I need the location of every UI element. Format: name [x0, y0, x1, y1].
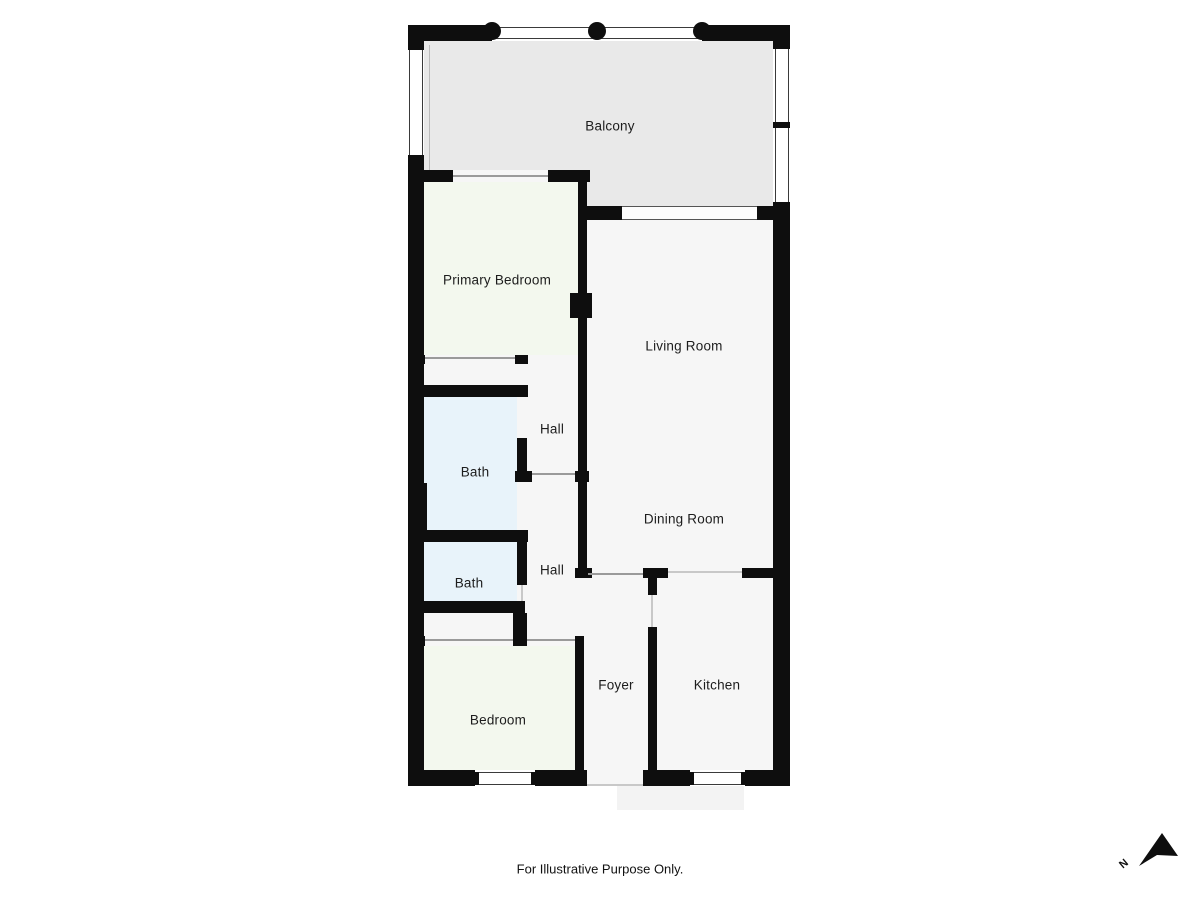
primary-bedroom-top-wall-left	[408, 170, 453, 182]
bedroom-floor	[424, 646, 575, 770]
primary-bedroom-top-wall-right	[548, 170, 590, 182]
primary-bedroom-bottom-stub-l	[408, 355, 425, 364]
bedroom-right-wall	[575, 636, 584, 770]
foyer-kitchen-door	[651, 595, 653, 627]
room-label-bath-upper: Bath	[461, 465, 490, 480]
bath-lower-right-wall	[517, 542, 527, 585]
foyer-kitchen-wall	[648, 627, 657, 770]
room-label-balcony: Balcony	[585, 119, 634, 134]
foyer-kitchen-wall-stem	[648, 578, 657, 595]
window-cap	[773, 44, 790, 49]
wall-right	[773, 205, 790, 786]
floor-plan: Balcony Primary Bedroom Living Room Hall…	[0, 0, 1200, 900]
room-label-primary-bedroom: Primary Bedroom	[443, 273, 551, 288]
window-cap	[408, 45, 424, 50]
bath-upper-wall-stub	[515, 471, 532, 482]
bath-lower-floor	[424, 542, 517, 607]
entry-door-threshold	[587, 784, 643, 786]
wall-right-corner	[773, 25, 790, 45]
room-label-bedroom: Bedroom	[470, 713, 526, 728]
kitchen-window	[690, 772, 745, 785]
entry-landing	[617, 786, 744, 810]
primary-bedroom-balcony-door	[453, 175, 548, 177]
compass: N	[1112, 822, 1200, 887]
hall-post-wall	[513, 613, 527, 646]
bath-divider-wall	[408, 530, 528, 542]
living-wall-stub	[575, 471, 589, 482]
window-cap	[408, 155, 424, 160]
primary-bedroom-bottom-stub	[515, 355, 528, 364]
window-cap	[531, 772, 535, 785]
hall-foyer-opening	[588, 573, 643, 575]
primary-bedroom-door	[425, 357, 515, 359]
window-cap	[690, 772, 694, 785]
dining-bottom-wall-left	[643, 568, 668, 578]
balcony-living-wall-left	[586, 206, 622, 220]
room-label-hall-lower: Hall	[540, 563, 564, 578]
north-arrow-icon	[1112, 822, 1200, 887]
window-cap	[475, 772, 479, 785]
bath-upper-floor	[424, 397, 517, 530]
bath-lower-door	[521, 585, 523, 601]
wall-bottom-3	[643, 770, 690, 786]
wall-left	[408, 158, 424, 786]
room-label-foyer: Foyer	[598, 678, 634, 693]
balcony-column-2	[588, 22, 606, 40]
bedroom-closet-threshold	[425, 639, 513, 641]
room-label-kitchen: Kitchen	[694, 678, 740, 693]
window-cap	[773, 202, 790, 207]
room-label-bath-lower: Bath	[455, 576, 484, 591]
bath-lower-bottom-wall	[408, 601, 525, 613]
balcony-living-wall-right	[757, 206, 773, 220]
window-cap	[741, 772, 745, 785]
balcony-floor-edge	[429, 45, 430, 170]
kitchen-dining-opening	[668, 571, 742, 573]
primary-bedroom-floor	[424, 182, 578, 355]
room-label-hall-upper: Hall	[540, 422, 564, 437]
window-mullion	[773, 122, 790, 128]
room-label-dining-room: Dining Room	[644, 512, 724, 527]
living-room-left-wall	[578, 182, 587, 578]
balcony-sliding-door	[622, 206, 757, 220]
bedroom-top-stub	[408, 636, 425, 646]
wall-bottom-2	[535, 770, 587, 786]
disclaimer-text: For Illustrative Purpose Only.	[517, 862, 684, 877]
balcony-column-1	[483, 22, 501, 40]
balcony-column-3	[693, 22, 711, 40]
wall-bottom-1	[408, 770, 475, 786]
bedroom-door	[527, 639, 575, 641]
wall-left-corner	[408, 25, 424, 46]
dining-bottom-wall-right	[742, 568, 773, 578]
room-label-living-room: Living Room	[645, 339, 722, 354]
bedroom-window	[475, 772, 535, 785]
wall-bottom-4	[745, 770, 790, 786]
bath-upper-top-wall	[408, 385, 528, 397]
balcony-window-left	[409, 50, 423, 155]
structural-column	[570, 293, 592, 318]
wall-left-chase	[408, 483, 427, 530]
hall-threshold	[532, 473, 575, 475]
